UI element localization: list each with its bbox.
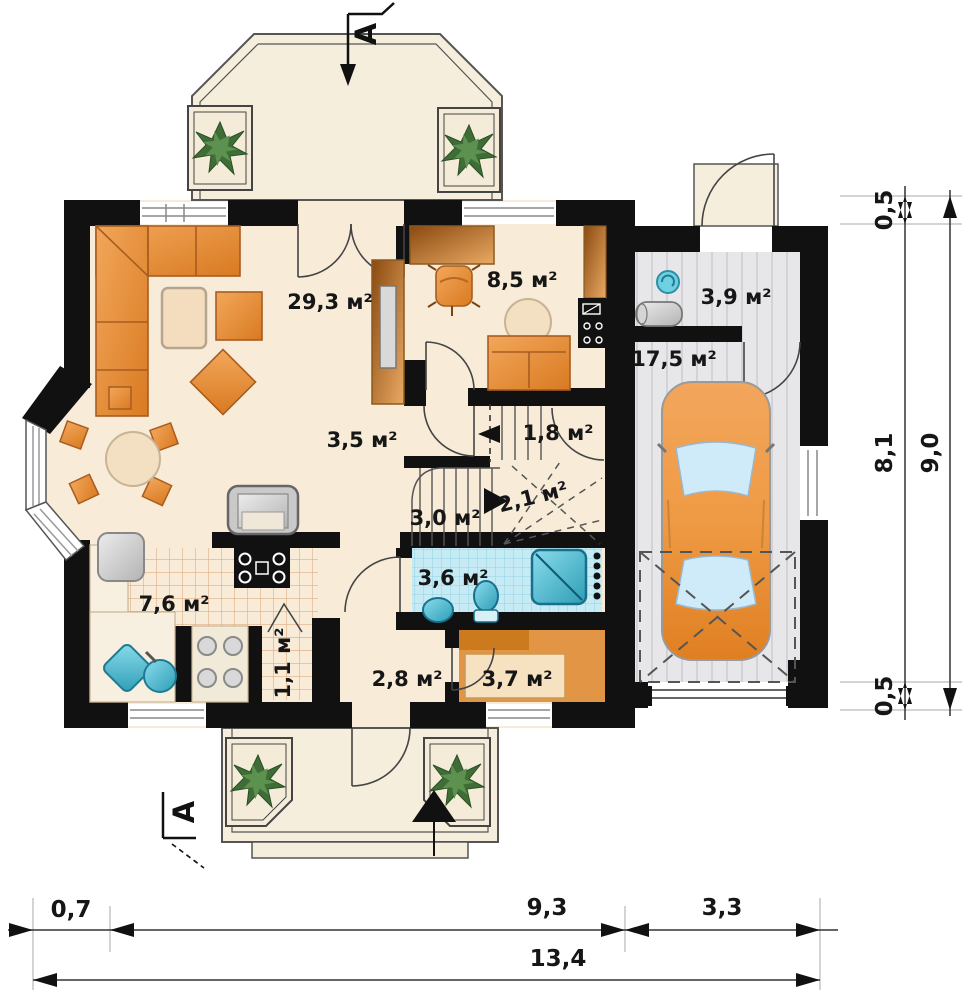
room-label-garage: 17,5 м² [631, 347, 717, 371]
garage-gate [642, 686, 796, 706]
room-label-kitchen: 7,6 м² [139, 592, 210, 616]
entry-steps [252, 842, 468, 858]
appliance-block [578, 298, 606, 348]
living-room-window [140, 202, 228, 224]
room-label-vestibule: 2,8 м² [372, 667, 443, 691]
room-label-wardrobe: 3,7 м² [482, 667, 553, 691]
wardrobe-window [486, 704, 552, 726]
kitchen-window [128, 704, 206, 726]
section-marker-bottom: A [163, 792, 204, 868]
shower [532, 550, 586, 604]
desk [410, 226, 494, 264]
floor-plan-canvas: A A 0,5 8,1 9,0 0,5 0,7 9,3 3,3 13,4 [0, 0, 972, 1000]
rear-window [676, 556, 756, 610]
dim-bottom-total: 13,4 [530, 946, 587, 972]
floor-plan-drawing: A A 0,5 8,1 9,0 0,5 0,7 9,3 3,3 13,4 [0, 0, 972, 1000]
floor-drain [657, 271, 679, 293]
room-label-hall: 3,5 м² [327, 428, 398, 452]
counter [584, 226, 606, 298]
garage-window [802, 448, 826, 518]
fridge [98, 533, 144, 581]
armchair [216, 292, 262, 340]
room-label-stairs-upper: 1,8 м² [523, 421, 594, 445]
room-label-stairs-lower: 3,0 м² [410, 506, 481, 530]
bathroom-sink [423, 598, 453, 622]
dim-right-wall-top: 0,5 [872, 190, 898, 231]
study-window [462, 202, 556, 224]
tv-cabinet [372, 260, 404, 404]
dim-bottom-garage: 3,3 [702, 895, 743, 921]
section-label-top: A [349, 22, 383, 45]
planter-top-right [438, 108, 500, 192]
room-label-bathroom: 3,6 м² [418, 566, 489, 590]
dim-right-inner: 8,1 [872, 433, 898, 474]
study-sofa [488, 336, 570, 390]
room-label-utility: 3,9 м² [701, 285, 772, 309]
room-label-pantry: 1,1 м² [271, 628, 295, 699]
side-door-landing [694, 164, 778, 226]
section-label-bottom: A [167, 800, 201, 823]
room-label-living: 29,3 м² [287, 290, 373, 314]
coffee-table [162, 288, 206, 348]
room-label-study: 8,5 м² [487, 268, 558, 292]
dim-right-total: 9,0 [918, 433, 944, 474]
dim-bottom-house: 9,3 [527, 895, 568, 921]
planter-top-left [188, 106, 252, 190]
windshield [676, 442, 756, 496]
water-heater [636, 302, 682, 326]
dim-bottom-bay: 0,7 [51, 897, 92, 923]
dim-right-wall-bottom: 0,5 [872, 676, 898, 717]
